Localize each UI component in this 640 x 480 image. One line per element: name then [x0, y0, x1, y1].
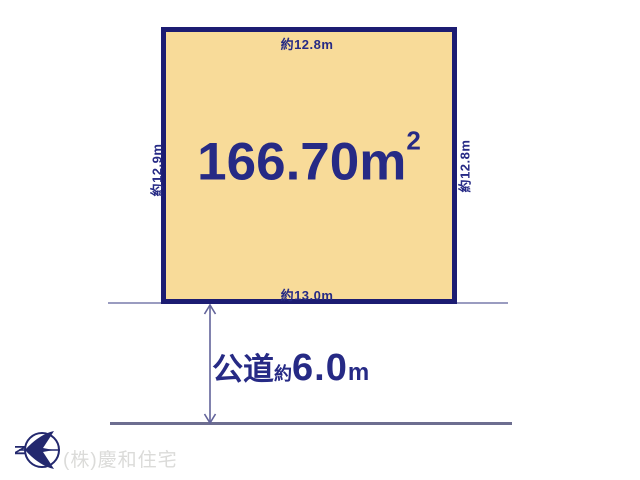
dimension-bottom: 約13.0m: [281, 285, 334, 304]
area-superscript: 2: [406, 126, 420, 156]
company-watermark: (株)慶和住宅: [63, 445, 178, 472]
road-width-unit: m: [348, 359, 369, 386]
area-value: 166.70m: [197, 133, 406, 192]
compass-north-icon: N: [8, 426, 70, 476]
dimension-top: 約12.8m: [281, 34, 334, 53]
road-lower-edge-line: [110, 422, 512, 425]
road-type-label: 公道: [212, 352, 274, 387]
road-width-label: 公道約6.0m: [212, 344, 369, 390]
dimension-left: 約12.9m: [147, 144, 166, 197]
land-plot-diagram: 約12.8m 約12.9m 約12.8m 約13.0m 166.70m2 公道約…: [0, 0, 640, 480]
dimension-right: 約12.8m: [455, 140, 474, 193]
road-approx-label: 約: [274, 364, 292, 384]
compass-north-letter: N: [12, 445, 28, 455]
area-label: 166.70m2: [197, 132, 421, 193]
road-width-value: 6.0: [292, 347, 348, 389]
